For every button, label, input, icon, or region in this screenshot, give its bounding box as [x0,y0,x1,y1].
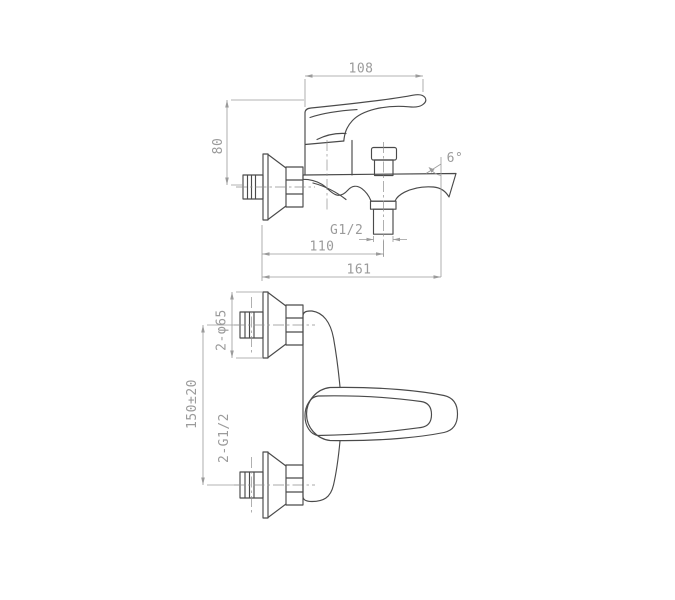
dim-label-161: 161 [347,263,372,278]
dimension-outlet-offset: 110 [262,240,384,258]
dim-label-110: 110 [310,240,335,255]
side-view-body [305,141,352,176]
dim-label-2xphi65: 2-φ65 [215,309,230,351]
faucet-technical-drawing: 108 80 G1/2 110 161 [0,0,675,600]
dim-label-6deg: 6° [447,151,464,166]
dimension-handle-length: 108 [305,62,423,108]
side-view-diverter-knob [372,148,397,176]
dimension-body-height: 80 [211,100,304,185]
dimension-spout-angle: 6° [426,151,463,277]
dim-label-80: 80 [211,138,226,155]
side-view-lever-handle [305,95,426,145]
dim-label-108: 108 [349,62,374,77]
dim-label-150pm20: 150±20 [185,379,200,429]
side-view-spout [303,174,456,202]
drawing-page: 108 80 G1/2 110 161 [0,0,675,600]
dim-label-2xg12: 2-G1/2 [217,413,232,463]
dim-label-g12: G1/2 [330,223,363,238]
side-view: 108 80 G1/2 110 161 [211,62,463,282]
front-view-lever-handle [305,387,458,440]
front-view: 2-φ65 150±20 2-G1/2 [185,292,458,518]
dimension-outlet-thread: G1/2 [330,223,407,242]
